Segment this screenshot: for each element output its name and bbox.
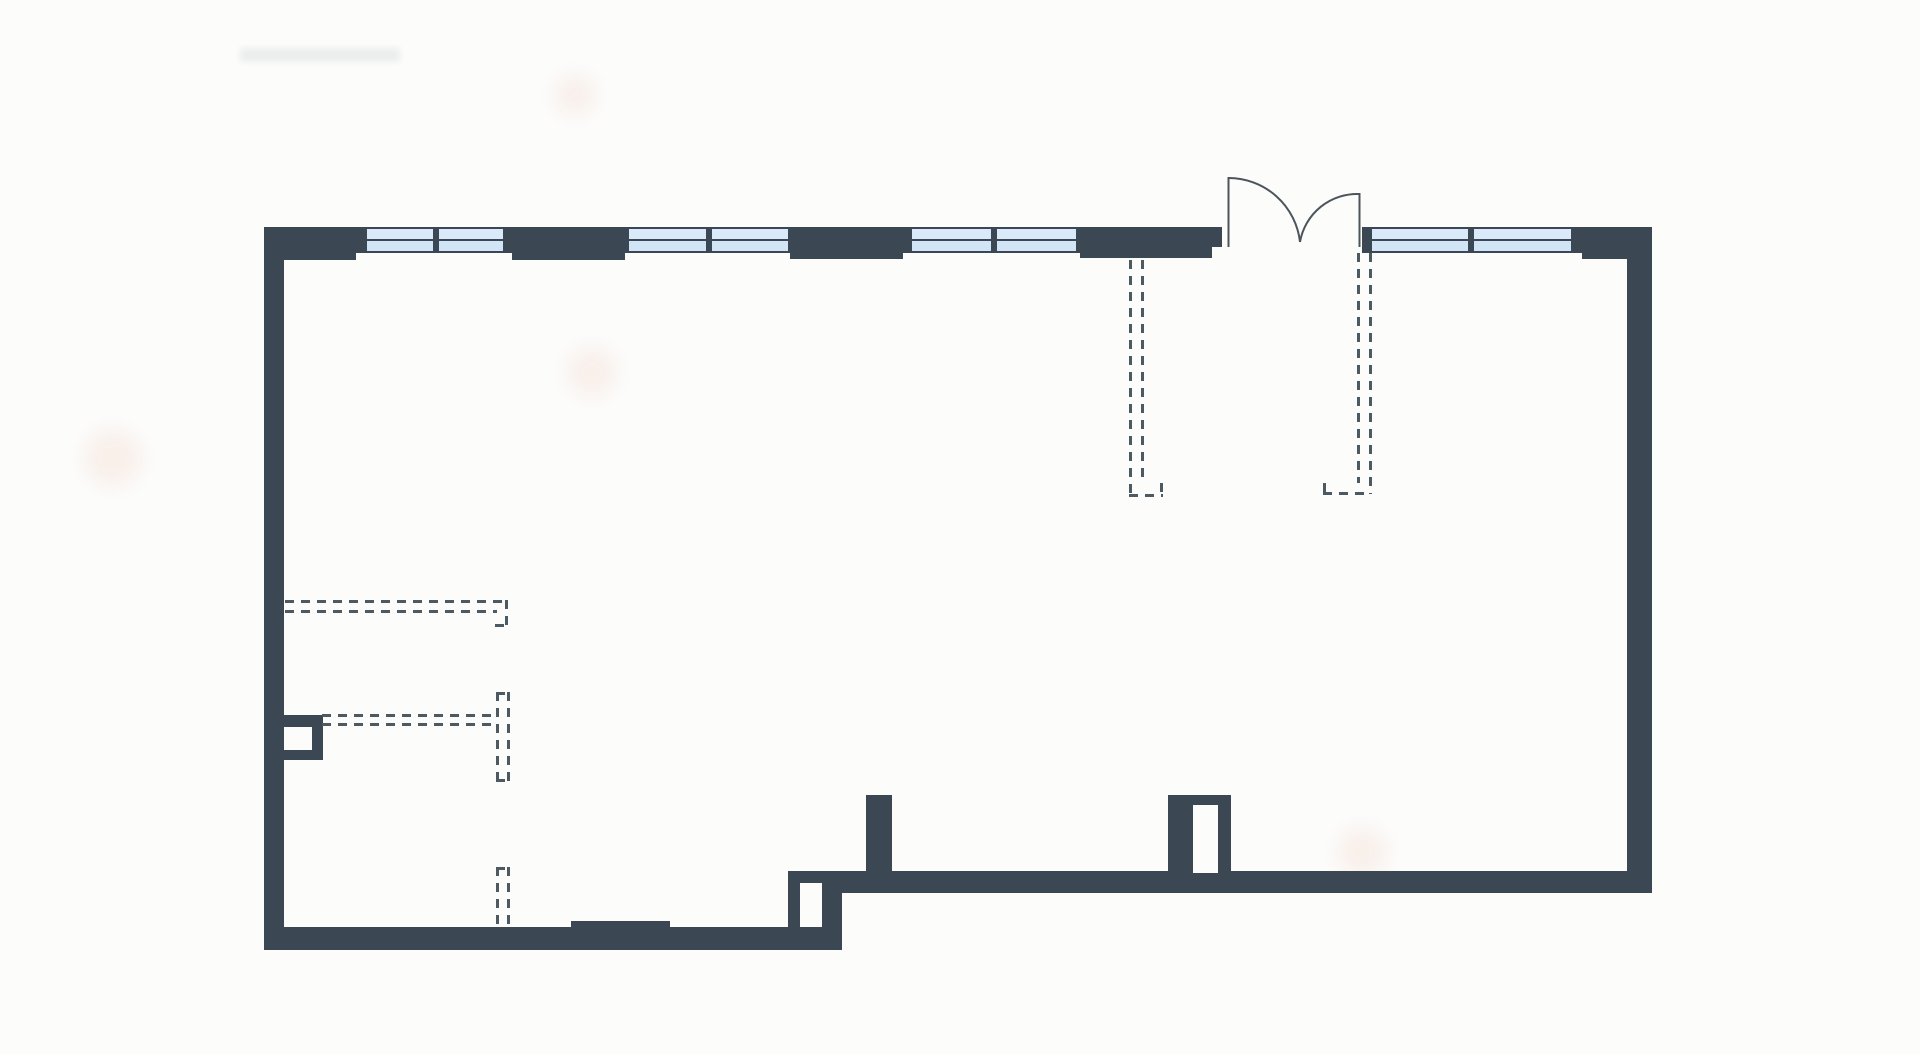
window-b2-pane-top bbox=[712, 229, 788, 239]
top-corner-right-ledge bbox=[1582, 252, 1627, 259]
top-wall-block-c bbox=[790, 227, 903, 259]
window-a1-pane-top bbox=[367, 229, 433, 239]
partition-dash-v1-a bbox=[496, 692, 499, 782]
window-b1-pane-top bbox=[629, 229, 706, 239]
doorframe-stub-opening bbox=[1193, 805, 1218, 873]
door-swing-arc-right bbox=[1300, 194, 1360, 242]
bottom-wall-lower bbox=[264, 927, 842, 950]
window-a2-pane-bottom bbox=[439, 241, 503, 251]
window-c2-pane-bottom bbox=[997, 241, 1076, 251]
faint-pencil-smudge bbox=[240, 48, 400, 62]
closet-dash-right-foot bbox=[1323, 492, 1370, 495]
window-a1-pane-bottom bbox=[367, 241, 433, 251]
window-c1-pane-bottom bbox=[912, 241, 991, 251]
partition-dash-h1-elbow bbox=[505, 600, 508, 627]
partition-dash-v2-a bbox=[496, 867, 499, 927]
closet-dash-right-a bbox=[1357, 253, 1360, 483]
bottom-wall-upper bbox=[788, 871, 1652, 893]
partition-dash-v2-b bbox=[507, 867, 510, 927]
floor-plan bbox=[0, 0, 1920, 1054]
right-wall bbox=[1627, 227, 1652, 893]
window-d2-pane-top bbox=[1474, 229, 1571, 239]
closet-dash-right-tick bbox=[1323, 483, 1326, 493]
door-swing-arc-left bbox=[1229, 178, 1301, 242]
window-c1-pane-top bbox=[912, 229, 991, 239]
top-wall-block-d bbox=[1080, 227, 1212, 258]
partition-dash-v1-cap-top bbox=[496, 692, 510, 695]
partition-dash-v1-cap-bot bbox=[496, 779, 510, 782]
paper-blemish-3 bbox=[85, 430, 141, 486]
closet-dash-right-b bbox=[1369, 253, 1372, 494]
window-a2-pane-top bbox=[439, 229, 503, 239]
partition-dash-h2-a bbox=[322, 714, 497, 717]
bottom-wall-sill-strip bbox=[571, 921, 670, 928]
partition-dash-h1-b bbox=[285, 610, 497, 613]
top-wall-block-b bbox=[512, 227, 625, 260]
closet-dash-left-a bbox=[1129, 260, 1132, 497]
window-d1-pane-top bbox=[1372, 229, 1468, 239]
paper-blemish-4 bbox=[1338, 828, 1386, 876]
paper-blemish-2 bbox=[568, 348, 616, 396]
window-d1-pane-bottom bbox=[1372, 241, 1468, 251]
step-wall-door-opening bbox=[800, 883, 822, 927]
partition-dash-h1-a bbox=[285, 600, 508, 603]
partition-dash-v1-b bbox=[507, 692, 510, 782]
closet-dash-left-b bbox=[1141, 260, 1144, 483]
window-d2-pane-bottom bbox=[1474, 241, 1571, 251]
door-jamb-left bbox=[1212, 227, 1222, 247]
interior-wall-stub bbox=[866, 795, 892, 873]
left-wall bbox=[264, 227, 284, 950]
closet-dash-left-tick bbox=[1160, 483, 1163, 495]
window-b2-pane-bottom bbox=[712, 241, 788, 251]
window-b1-pane-bottom bbox=[629, 241, 706, 251]
column-box-opening bbox=[284, 727, 312, 750]
partition-dash-h2-b bbox=[322, 723, 497, 726]
closet-dash-left-foot bbox=[1129, 494, 1163, 497]
partition-dash-v2-cap bbox=[496, 867, 510, 870]
paper-blemish-1 bbox=[555, 75, 595, 115]
partition-dash-h1-tick bbox=[495, 624, 506, 627]
window-c2-pane-top bbox=[997, 229, 1076, 239]
